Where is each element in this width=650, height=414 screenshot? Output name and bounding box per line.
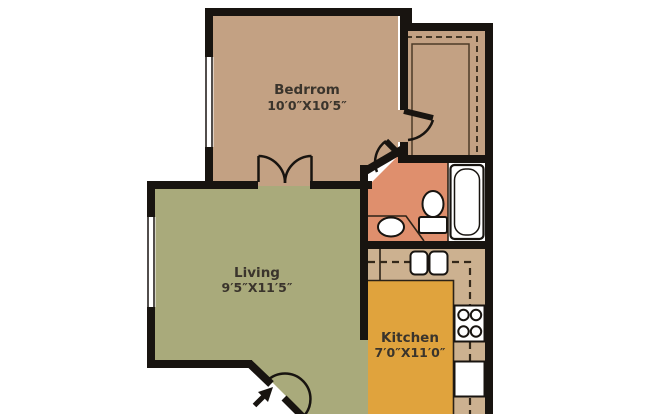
kitchen-dimensions: 7′0″X11′0″ [375,345,446,360]
wall-living-left-upper [147,181,155,217]
stove-burner [458,326,468,336]
wall-bedroom-left-upper [205,8,213,57]
living-dimensions: 9′5″X11′5″ [222,280,293,295]
kitchen-sink-basin-left [411,252,428,275]
wall-closet-top [404,23,493,31]
bathroom-sink [378,218,404,237]
wall-closet-bottom [398,155,485,163]
floor-plan: Bedrrom 10′0″X10′5″ Living 9′5″X11′5″ Ki… [0,0,650,414]
wall-living-top-left [147,181,258,189]
toilet-tank [419,217,447,233]
wall-bedroom-top [205,8,412,16]
living-label: Living [234,265,280,281]
toilet-bowl [423,191,444,217]
wall-living-left-lower [147,307,155,368]
bedroom-door-threshold [398,110,408,142]
wall-bedroom-left-lower [205,147,213,185]
wall-living-bottom [147,360,252,368]
bedroom-label: Bedrrom [274,82,340,98]
floor-plan-drawing: Bedrrom 10′0″X10′5″ Living 9′5″X11′5″ Ki… [0,0,650,414]
bedroom-dimensions: 10′0″X10′5″ [267,98,347,113]
wall-kitchen-left [360,165,368,340]
refrigerator [455,362,485,397]
stove-burner [458,310,468,320]
kitchen-sink-basin-right [430,252,448,275]
kitchen-label: Kitchen [381,330,439,346]
stove-burner [471,326,481,336]
stove-burner [471,310,481,320]
wall-bathroom-bottom [360,241,485,249]
wall-right-exterior [485,23,493,414]
